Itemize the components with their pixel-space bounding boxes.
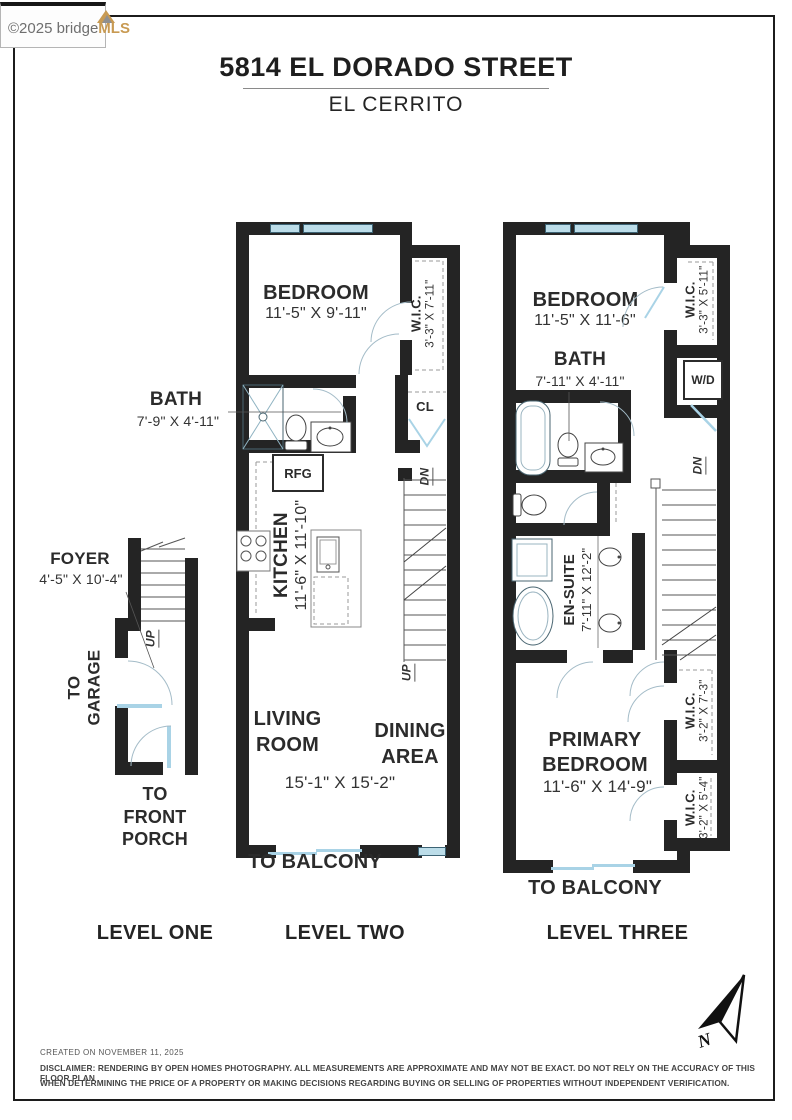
room-label-ensuite: EN-SUITE 7'-11" X 12'-2"	[561, 515, 595, 665]
washer-dryer-box: W/D	[683, 360, 723, 400]
bridgemls-logo: ©2025 bridgeMLS	[0, 2, 106, 48]
stairs-dn-label: DN	[415, 457, 432, 497]
wic-name: W.I.C.	[682, 244, 698, 356]
level-caption-one: LEVEL ONE	[85, 922, 225, 945]
annotation-to-balcony-l2: TO BALCONY	[245, 852, 385, 874]
logo-brand: MLS	[98, 20, 130, 37]
wall	[603, 650, 633, 663]
wall	[717, 245, 730, 845]
room-label-line: BEDROOM	[530, 753, 660, 778]
window	[303, 224, 373, 233]
window	[545, 224, 571, 233]
wall	[115, 631, 128, 658]
wall	[115, 618, 141, 631]
stairs-up-label: UP	[397, 653, 414, 693]
ensuite-dims: 7'-11" X 12'-2"	[579, 515, 595, 665]
front-door-leaf	[167, 726, 171, 768]
room-dims-living-dining: 15'-1" X 15'-2"	[270, 774, 410, 792]
wall	[664, 235, 677, 283]
room-dims-bath-l2: 7'-9" X 4'-11"	[128, 414, 228, 429]
room-label-line: AREA	[360, 744, 460, 770]
wall	[664, 720, 677, 760]
annotation-line: TO	[64, 633, 84, 743]
dishwasher-label: D/W	[312, 583, 352, 597]
room-label-bedroom-l2: BEDROOM	[246, 283, 386, 305]
room-label-line: ROOM	[240, 732, 335, 758]
room-dims-bedroom-l2: 11'-5" X 9'-11"	[236, 305, 396, 322]
room-label-bedroom-l3: BEDROOM	[513, 290, 658, 312]
annotation-line: FRONT	[105, 806, 205, 829]
wall	[445, 845, 460, 858]
wall	[664, 330, 677, 345]
room-label-living-room: LIVING ROOM	[240, 706, 335, 758]
room-label-dining-area: DINING AREA	[360, 718, 460, 770]
wall	[115, 706, 128, 764]
wic-dims: 3'-3" X 5'-11"	[698, 244, 712, 356]
wall	[395, 440, 420, 453]
wall	[503, 650, 567, 663]
window	[418, 847, 446, 856]
wall	[664, 650, 677, 663]
wall	[236, 440, 356, 453]
refrigerator-label: RFG	[284, 466, 311, 481]
logo-text: ©2025 bridgeMLS	[8, 20, 130, 37]
stairs-dn-text: DN	[690, 457, 706, 475]
floorplan-page: ©2025 bridgeMLS 5814 EL DORADO STREET EL…	[0, 0, 792, 1120]
sliding-door	[551, 867, 594, 870]
wall	[185, 558, 198, 775]
stairs-up-text: UP	[143, 630, 159, 647]
wall	[115, 762, 163, 775]
wall	[664, 663, 677, 683]
north-compass-icon: N	[688, 965, 772, 1053]
wall	[632, 533, 645, 650]
svg-text:N: N	[694, 1028, 714, 1052]
level-caption-three: LEVEL THREE	[540, 922, 695, 945]
room-dims-bath-l3: 7'-11" X 4'-11"	[520, 374, 640, 389]
room-label-line: LIVING	[240, 706, 335, 732]
annotation-line: GARAGE	[84, 633, 104, 743]
room-label-wic-l2: W.I.C. 3'-3" X 7'-11"	[408, 256, 437, 372]
wall	[398, 468, 412, 481]
washer-dryer-label: W/D	[691, 373, 714, 387]
room-label-kitchen: KITCHEN 11'-6" X 11'-10"	[271, 480, 311, 630]
page-title: 5814 EL DORADO STREET	[120, 52, 672, 83]
wall	[618, 400, 631, 480]
window	[574, 224, 638, 233]
closet-label: CL	[405, 400, 445, 414]
wall	[664, 820, 677, 838]
garage-door-leaf	[117, 704, 162, 708]
wic-name: W.I.C.	[682, 657, 698, 765]
wall	[236, 618, 275, 631]
wic-name: W.I.C.	[682, 757, 698, 859]
wall	[503, 470, 631, 483]
room-label-wic-mid-l3: W.I.C. 3'-2" X 7'-3"	[682, 657, 711, 765]
wic-dims: 3'-3" X 7'-11"	[424, 256, 438, 372]
wic-dims: 3'-2" X 5'-4"	[698, 757, 712, 859]
annotation-line: TO	[105, 783, 205, 806]
annotation-to-balcony-l3: TO BALCONY	[525, 878, 665, 900]
stairs-up-label: UP	[141, 621, 158, 657]
window	[270, 224, 300, 233]
ensuite-name: EN-SUITE	[561, 515, 579, 665]
sliding-door	[592, 864, 635, 867]
wic-name: W.I.C.	[408, 256, 424, 372]
room-label-bath-l2: BATH	[136, 390, 216, 411]
room-label-primary-bedroom: PRIMARY BEDROOM	[530, 728, 660, 778]
wall	[503, 390, 631, 403]
room-label-foyer: FOYER	[30, 550, 130, 568]
room-dims-primary-bedroom: 11'-6" X 14'-9"	[520, 778, 675, 796]
room-label-line: DINING	[360, 718, 460, 744]
stairs-up-text: UP	[399, 664, 415, 681]
logo-copyright: ©2025 bridge	[8, 20, 98, 37]
kitchen-dims: 11'-6" X 11'-10"	[293, 480, 311, 630]
wall	[633, 860, 690, 873]
stairs-dn-text: DN	[417, 468, 433, 486]
title-divider	[243, 88, 549, 89]
room-label-wic-bottom-l3: W.I.C. 3'-2" X 5'-4"	[682, 757, 711, 859]
room-label-wic-top-l3: W.I.C. 3'-3" X 5'-11"	[682, 244, 711, 356]
wall	[503, 860, 553, 873]
footer-disclaimer-line2: WHEN DETERMINING THE PRICE OF A PROPERTY…	[40, 1078, 766, 1088]
annotation-line: PORCH	[105, 828, 205, 851]
annotation-to-front-porch: TO FRONT PORCH	[105, 783, 205, 851]
room-label-line: PRIMARY	[530, 728, 660, 753]
room-dims-foyer: 4'-5" X 10'-4"	[18, 572, 144, 587]
wall	[664, 405, 730, 418]
footer-created-date: CREATED ON NOVEMBER 11, 2025	[40, 1048, 184, 1057]
level-caption-two: LEVEL TWO	[275, 922, 415, 945]
annotation-to-garage: TO GARAGE	[64, 633, 103, 743]
room-label-bath-l3: BATH	[530, 350, 630, 371]
room-dims-bedroom-l3: 11'-5" X 11'-6"	[505, 312, 665, 329]
wic-dims: 3'-2" X 7'-3"	[698, 657, 712, 765]
wall	[236, 375, 356, 388]
page-subtitle: EL CERRITO	[120, 93, 672, 117]
stairs-dn-label: DN	[688, 446, 705, 486]
kitchen-name: KITCHEN	[271, 480, 293, 630]
